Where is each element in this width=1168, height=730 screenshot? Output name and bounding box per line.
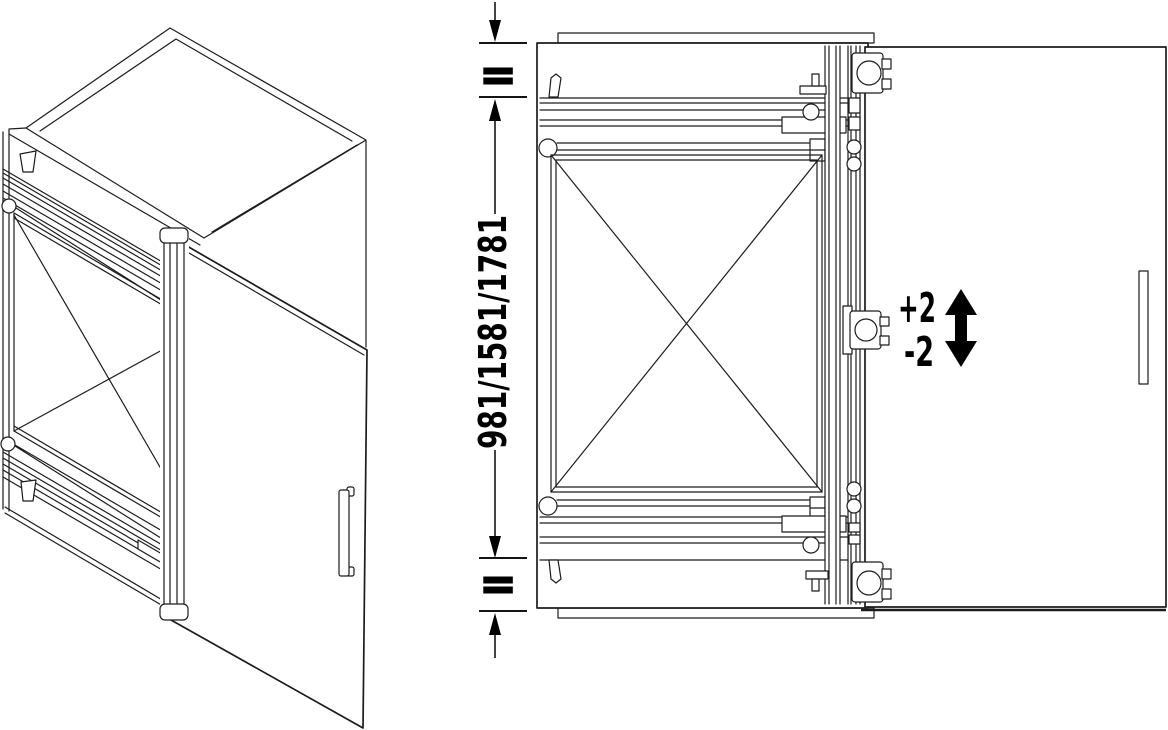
profile-top-cap [160, 228, 188, 243]
latch-hook-top [20, 151, 36, 172]
roller-wheel [857, 571, 881, 595]
top-mounting-plate [558, 33, 874, 43]
pivot-roller-top [539, 139, 557, 157]
mounting-bracket-bottom [806, 571, 828, 579]
dimension-arrow-bottom-icon [489, 613, 501, 658]
mounting-bracket-top [800, 86, 826, 94]
latch-hook-bottom [21, 480, 36, 501]
rail-roller-bottom [803, 537, 819, 553]
height-dimension-label: 981/1581/1781 [471, 215, 515, 449]
pivot-roller-top [2, 199, 16, 213]
adjust-up-label: +2 [898, 284, 936, 332]
equal-spacing-top-label: = [480, 50, 517, 101]
mounting-tab-bottom [812, 579, 819, 591]
roller-wheel [855, 319, 877, 341]
rail-roller-top [803, 104, 819, 120]
pivot-roller-bottom [1, 437, 15, 451]
dimension-arrow-down-icon [489, 450, 501, 558]
profile-bottom-cap [160, 604, 188, 620]
door-handle [1139, 271, 1148, 384]
cabinet-top-panel [26, 28, 366, 238]
pivot-roller-bottom [539, 497, 557, 515]
pivot-sliding-door-diagram: = 981/1581/1781 = +2 -2 [0, 0, 1168, 730]
equal-spacing-bottom-label: = [480, 559, 517, 610]
technical-diagram-canvas: = 981/1581/1781 = +2 -2 [0, 0, 1168, 730]
bottom-mounting-plate [558, 608, 874, 618]
adjust-down-label: -2 [904, 328, 934, 376]
dimension-arrow-top-icon [489, 2, 501, 42]
rail-end-bracket-top [810, 139, 825, 161]
isometric-cabinet-figure [1, 28, 367, 728]
dimension-annotations: = 981/1581/1781 = [471, 2, 527, 658]
dimension-arrow-up-icon [489, 99, 501, 214]
open-door-panel-iso [171, 246, 367, 728]
front-view-figure [537, 33, 1166, 618]
mounting-tab-top [812, 74, 819, 86]
door-edge-profile-iso [160, 228, 189, 620]
roller-wheel [857, 61, 881, 85]
